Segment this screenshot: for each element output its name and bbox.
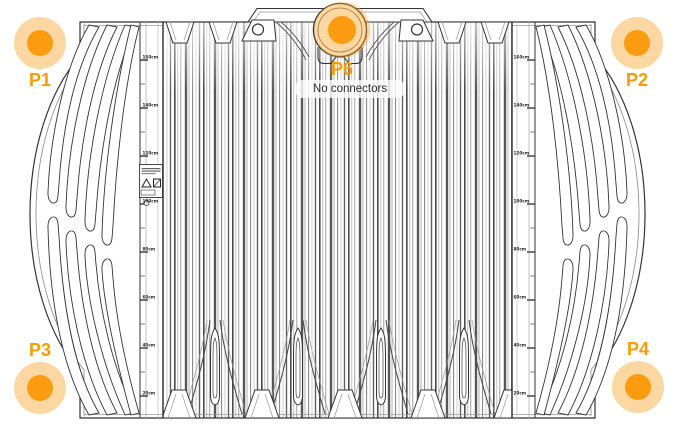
svg-text:20cm: 20cm — [514, 391, 527, 396]
port-marker-p2[interactable]: P2 — [611, 17, 663, 69]
port-label: P1 — [29, 70, 51, 91]
bolt-hole-left — [253, 24, 264, 35]
port-dot — [27, 30, 53, 56]
port-marker-p6[interactable]: P6 — [314, 2, 370, 58]
svg-text:120cm: 120cm — [514, 151, 530, 156]
no-connectors-tooltip: No connectors — [296, 80, 404, 98]
tank-configurator-view: 160cm 140cm 120cm 100cm 80cm 60cm 40cm 2… — [0, 0, 675, 429]
bolt-hole-right — [412, 24, 423, 35]
svg-text:80cm: 80cm — [143, 247, 156, 252]
svg-text:120cm: 120cm — [143, 151, 159, 156]
svg-text:80cm: 80cm — [514, 247, 527, 252]
svg-text:100cm: 100cm — [514, 199, 530, 204]
svg-text:60cm: 60cm — [143, 295, 156, 300]
svg-text:100cm: 100cm — [143, 199, 159, 204]
port-label: P2 — [626, 70, 648, 91]
port-label: P4 — [627, 339, 649, 360]
svg-text:40cm: 40cm — [143, 343, 156, 348]
svg-text:60cm: 60cm — [514, 295, 527, 300]
svg-text:140cm: 140cm — [514, 103, 530, 108]
svg-text:160cm: 160cm — [143, 55, 159, 60]
port-dot — [624, 30, 650, 56]
port-marker-p4[interactable]: P4 — [612, 361, 664, 413]
svg-text:40cm: 40cm — [514, 343, 527, 348]
port-label: P3 — [29, 340, 51, 361]
port-dot — [328, 16, 356, 44]
svg-text:140cm: 140cm — [143, 103, 159, 108]
port-marker-p3[interactable]: P3 — [14, 362, 66, 414]
svg-text:20cm: 20cm — [143, 391, 156, 396]
port-label: P6 — [331, 59, 353, 80]
svg-text:160cm: 160cm — [514, 55, 530, 60]
port-dot — [625, 374, 651, 400]
port-dot — [27, 375, 53, 401]
port-marker-p1[interactable]: P1 — [14, 17, 66, 69]
